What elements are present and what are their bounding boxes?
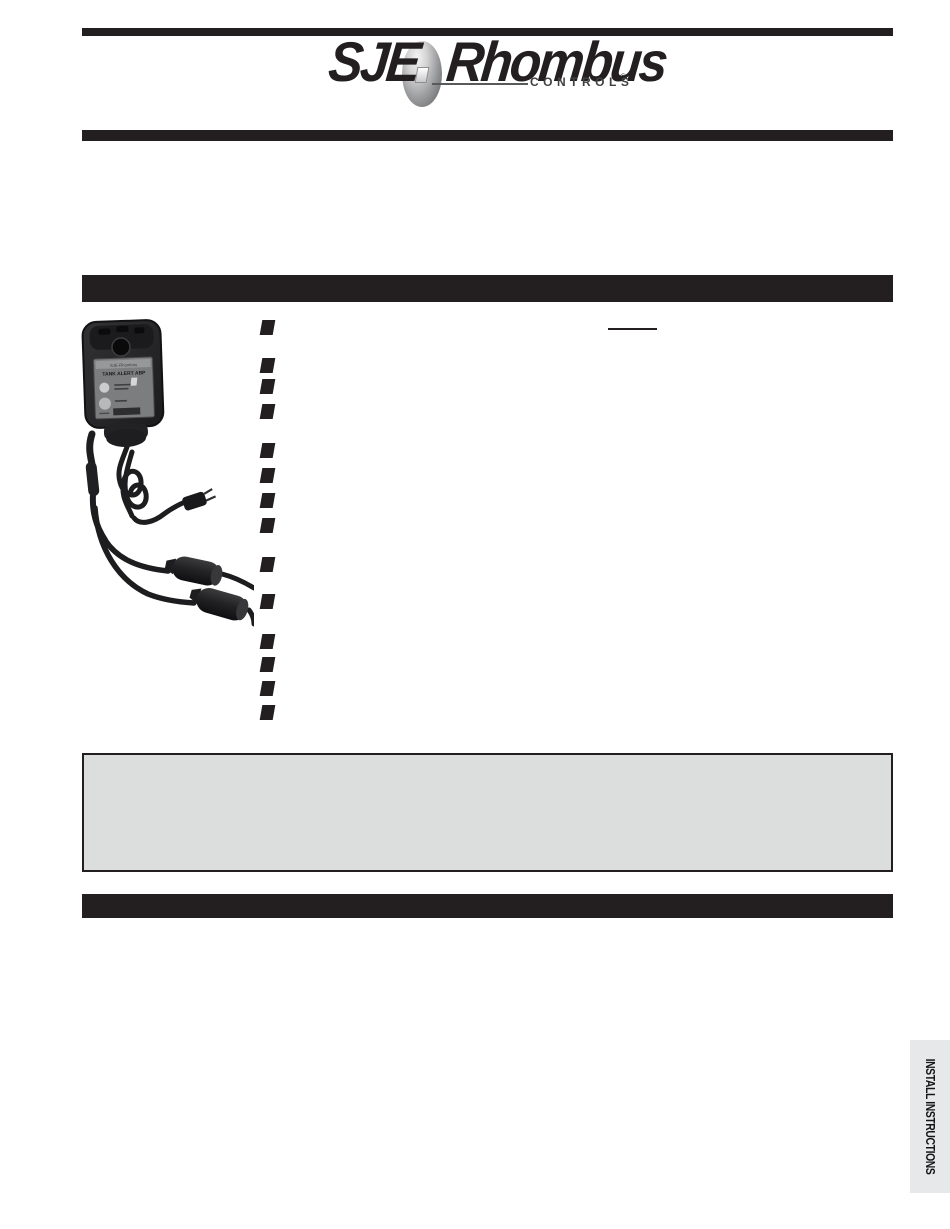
power-plug: [181, 488, 217, 512]
feature-bullet: [260, 705, 276, 720]
alarm-enclosure: SJE-Rhombus TANK ALERT ABP: [82, 320, 164, 449]
section-header-bar-1: [82, 275, 893, 302]
feature-bullet: [260, 443, 276, 458]
product-photo: SJE-Rhombus TANK ALERT ABP: [78, 316, 254, 636]
underlined-blank: [608, 328, 657, 330]
feature-bullet: [260, 518, 276, 533]
cord-splice: [85, 461, 99, 496]
feature-bullet: [260, 358, 276, 373]
logo-text-sje: SJE: [326, 34, 421, 90]
feature-bullet: [260, 681, 276, 696]
header-rule: [82, 130, 893, 141]
feature-bullet: [260, 594, 276, 609]
controls-rule: [432, 83, 528, 85]
brand-logo: SJE Rhombus ® CONTROLS: [330, 40, 660, 118]
install-instructions-tab: INSTALL INSTRUCTIONS: [910, 1040, 950, 1193]
feature-bullet: [260, 657, 276, 672]
install-instructions-label: INSTALL INSTRUCTIONS: [923, 1059, 938, 1175]
feature-bullet: [260, 379, 276, 394]
section-header-bar-2: [82, 894, 893, 918]
feature-bullet: [260, 557, 276, 572]
feature-bullet: [260, 468, 276, 483]
feature-bullet: [260, 320, 276, 335]
logo-text-controls: CONTROLS: [530, 75, 633, 89]
device-label-brand: SJE-Rhombus: [110, 362, 137, 368]
document-page: SJE Rhombus ® CONTROLS: [0, 0, 950, 1229]
feature-bullet: [260, 493, 276, 508]
float-switch-1: [163, 553, 224, 588]
feature-bullet: [260, 404, 276, 419]
note-box: [82, 753, 893, 872]
feature-bullet: [260, 634, 276, 649]
